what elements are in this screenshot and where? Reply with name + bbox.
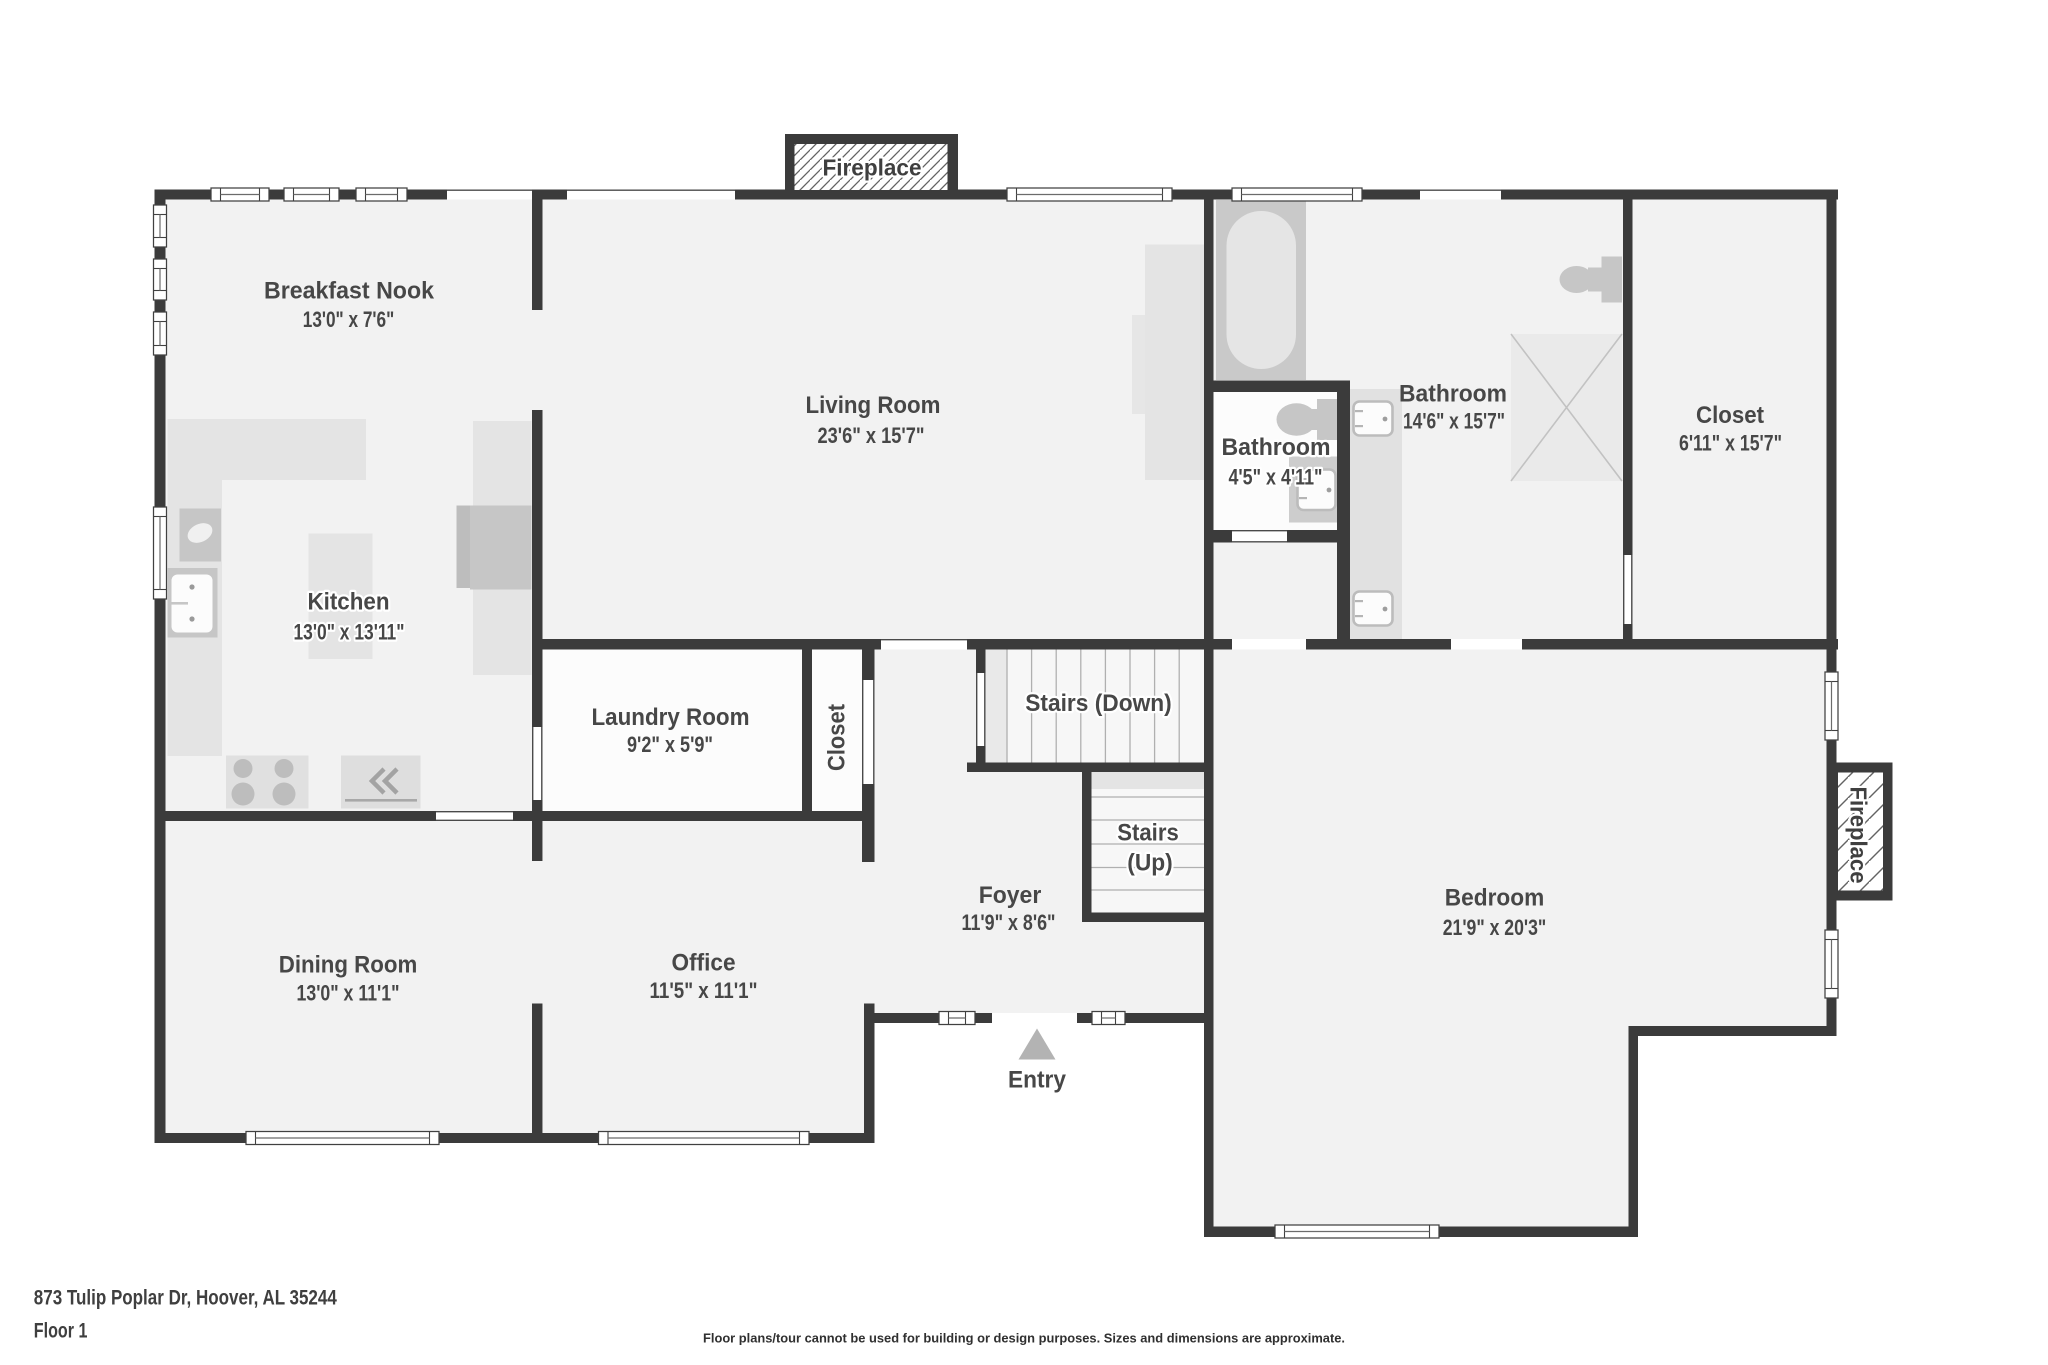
svg-text:9'2" x 5'9": 9'2" x 5'9"	[627, 732, 713, 757]
svg-text:Bathroom: Bathroom	[1222, 434, 1331, 461]
svg-text:11'9" x 8'6": 11'9" x 8'6"	[962, 910, 1056, 935]
svg-text:11'5" x 11'1": 11'5" x 11'1"	[650, 978, 758, 1003]
svg-text:21'9" x 20'3": 21'9" x 20'3"	[1443, 915, 1547, 940]
svg-text:Closet: Closet	[824, 704, 851, 771]
svg-text:Breakfast Nook: Breakfast Nook	[264, 278, 435, 305]
svg-text:Fireplace: Fireplace	[1846, 787, 1872, 884]
svg-text:Living Room: Living Room	[806, 392, 941, 419]
svg-text:13'0" x 13'11": 13'0" x 13'11"	[294, 620, 405, 645]
svg-text:873 Tulip Poplar Dr, Hoover, A: 873 Tulip Poplar Dr, Hoover, AL 35244	[34, 1285, 337, 1309]
svg-text:Entry: Entry	[1008, 1067, 1067, 1094]
svg-text:Fireplace: Fireplace	[823, 155, 922, 181]
svg-text:4'5" x 4'11": 4'5" x 4'11"	[1229, 465, 1323, 490]
svg-text:13'0" x 7'6": 13'0" x 7'6"	[303, 307, 395, 332]
svg-text:Bathroom: Bathroom	[1399, 381, 1507, 408]
svg-text:23'6" x 15'7": 23'6" x 15'7"	[818, 423, 925, 448]
svg-text:Floor 1: Floor 1	[34, 1319, 88, 1343]
svg-text:Kitchen: Kitchen	[308, 589, 390, 616]
svg-text:Foyer: Foyer	[979, 882, 1042, 909]
svg-text:13'0" x 11'1": 13'0" x 11'1"	[297, 981, 400, 1006]
svg-text:(Up): (Up)	[1127, 850, 1173, 877]
svg-text:14'6" x 15'7": 14'6" x 15'7"	[1403, 409, 1505, 434]
svg-text:Closet: Closet	[1696, 402, 1764, 429]
svg-text:Floor plans/tour cannot be use: Floor plans/tour cannot be used for buil…	[703, 1331, 1345, 1346]
svg-text:Stairs: Stairs	[1117, 820, 1179, 847]
svg-text:Office: Office	[672, 950, 736, 977]
svg-text:Bedroom: Bedroom	[1445, 885, 1545, 912]
svg-text:Dining Room: Dining Room	[279, 952, 418, 979]
svg-text:Laundry Room: Laundry Room	[592, 704, 750, 731]
svg-text:Stairs (Down): Stairs (Down)	[1025, 690, 1172, 717]
svg-text:6'11" x 15'7": 6'11" x 15'7"	[1679, 431, 1782, 456]
